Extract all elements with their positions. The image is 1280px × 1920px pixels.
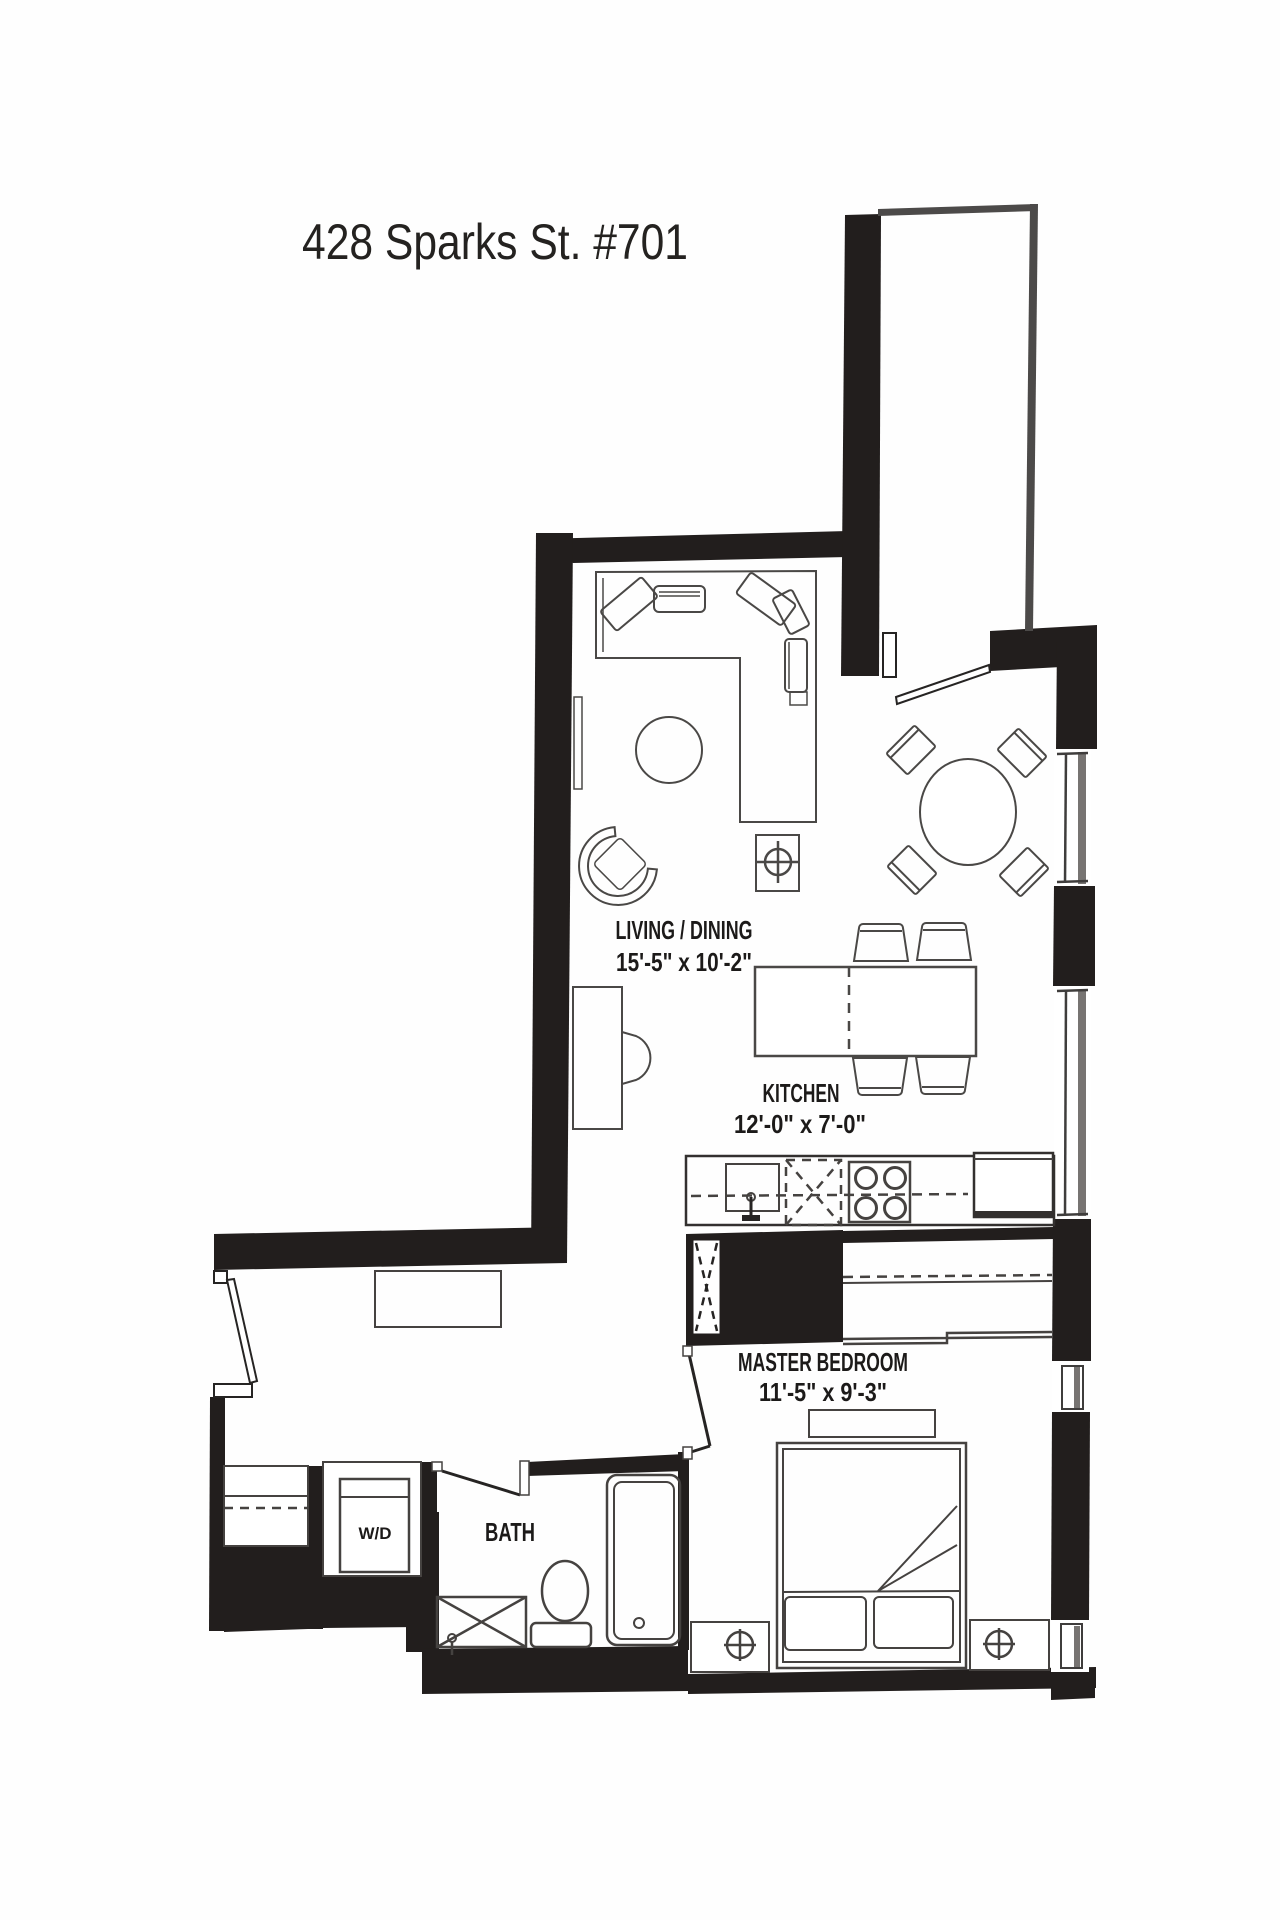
svg-text:BATH: BATH [485,1517,535,1547]
svg-text:428 Sparks St. #701: 428 Sparks St. #701 [302,214,688,270]
svg-text:15'-5" x 10'-2": 15'-5" x 10'-2" [616,947,752,977]
svg-text:KITCHEN: KITCHEN [763,1078,840,1108]
svg-text:12'-0" x 7'-0": 12'-0" x 7'-0" [734,1109,866,1139]
svg-text:W/D: W/D [359,1524,392,1543]
svg-text:11'-5" x 9'-3": 11'-5" x 9'-3" [759,1377,887,1407]
svg-text:MASTER BEDROOM: MASTER BEDROOM [738,1347,908,1377]
svg-text:LIVING / DINING: LIVING / DINING [616,915,753,945]
